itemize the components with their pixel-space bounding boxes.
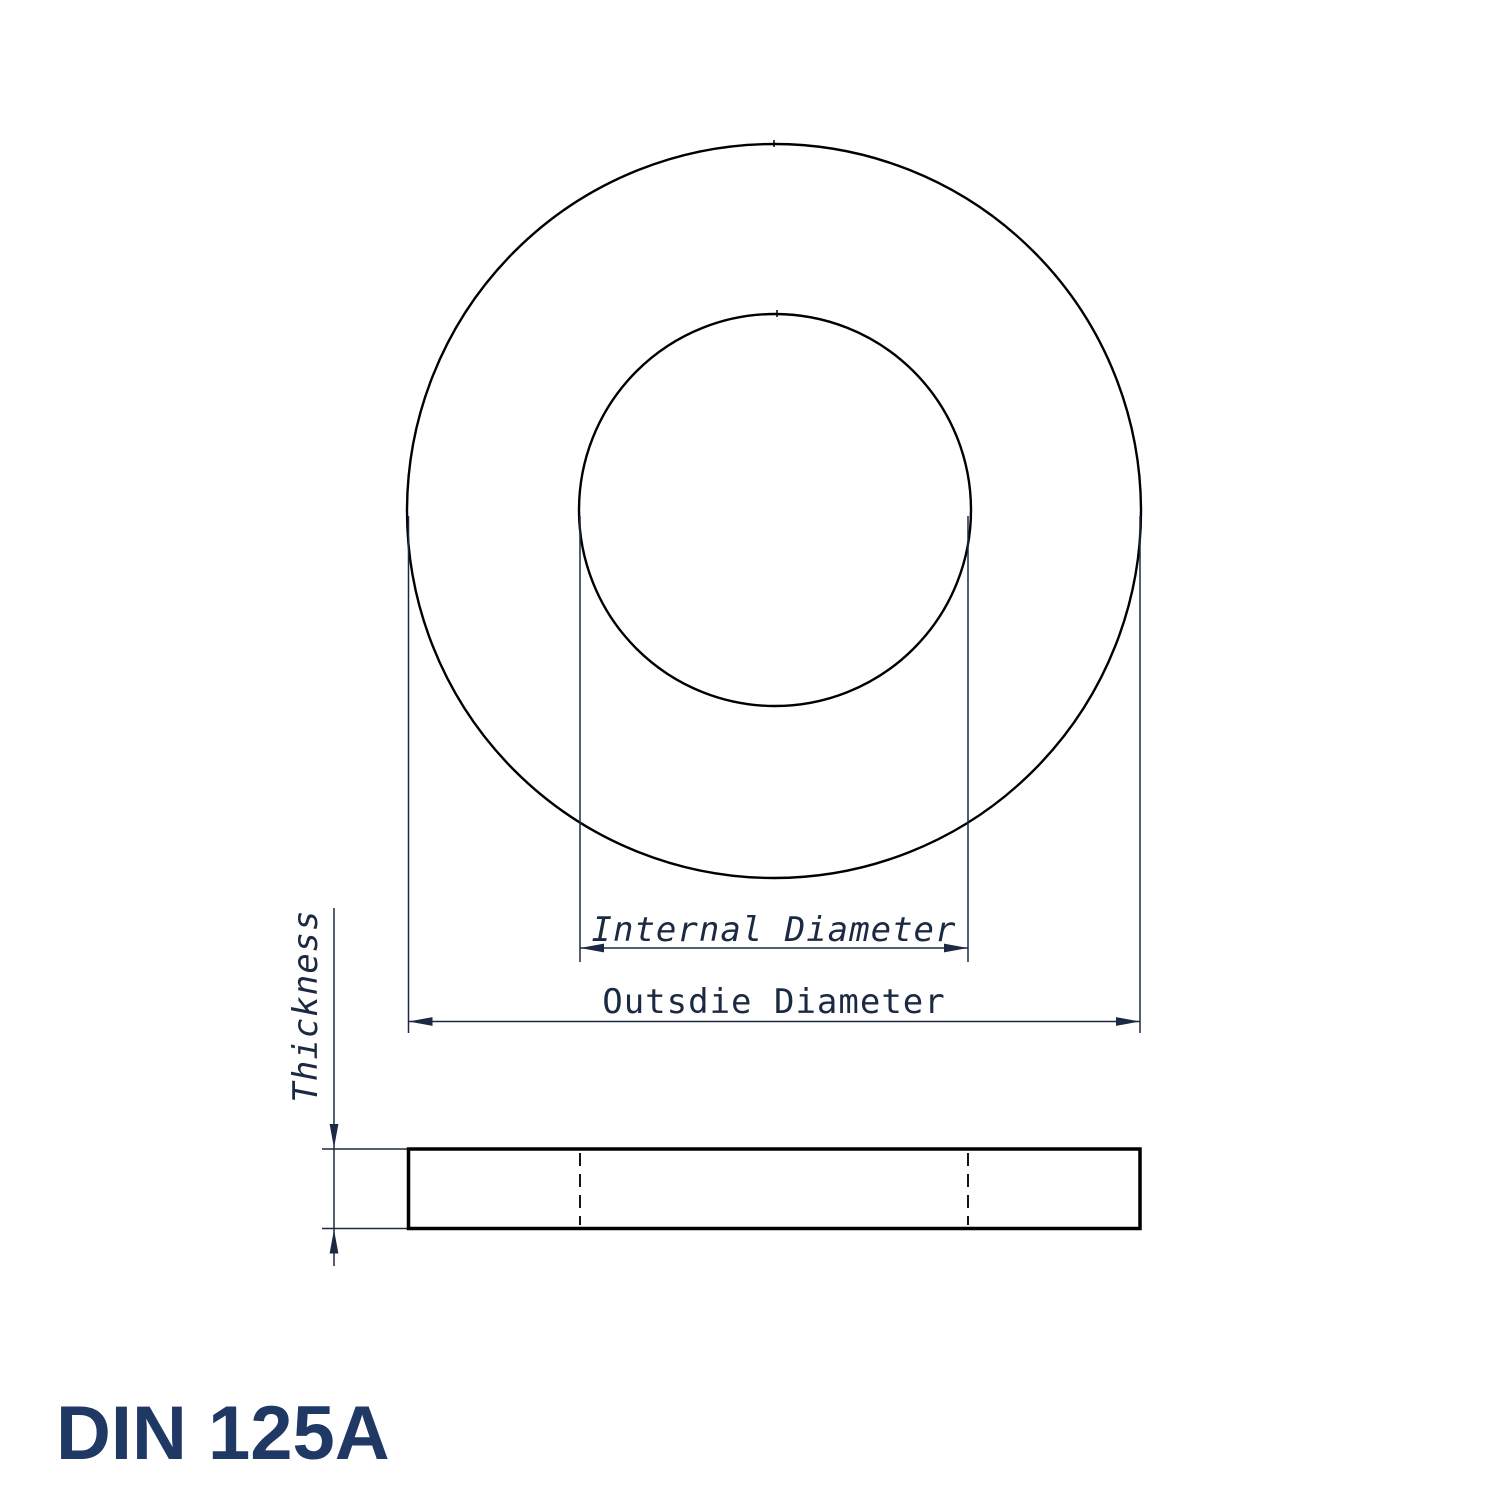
arrowhead-up-icon bbox=[330, 1230, 339, 1254]
drawing-sheet: Internal Diameter Outsdie Diameter Thick… bbox=[0, 0, 1500, 1500]
inner-hole-circle bbox=[579, 314, 971, 706]
outer-diameter-circle bbox=[407, 144, 1141, 878]
arrowhead-right-icon bbox=[1116, 1017, 1140, 1026]
washer-technical-drawing: Internal Diameter Outsdie Diameter Thick… bbox=[0, 0, 1500, 1500]
arrowhead-down-icon bbox=[330, 1124, 339, 1148]
drawing-title: DIN 125A bbox=[56, 1390, 390, 1477]
washer-side-section bbox=[409, 1149, 1141, 1229]
outside-diameter-label: Outsdie Diameter bbox=[602, 982, 946, 1022]
arrowhead-left-icon bbox=[409, 1017, 433, 1026]
thickness-label: Thickness bbox=[286, 909, 326, 1102]
internal-diameter-label: Internal Diameter bbox=[592, 910, 957, 950]
